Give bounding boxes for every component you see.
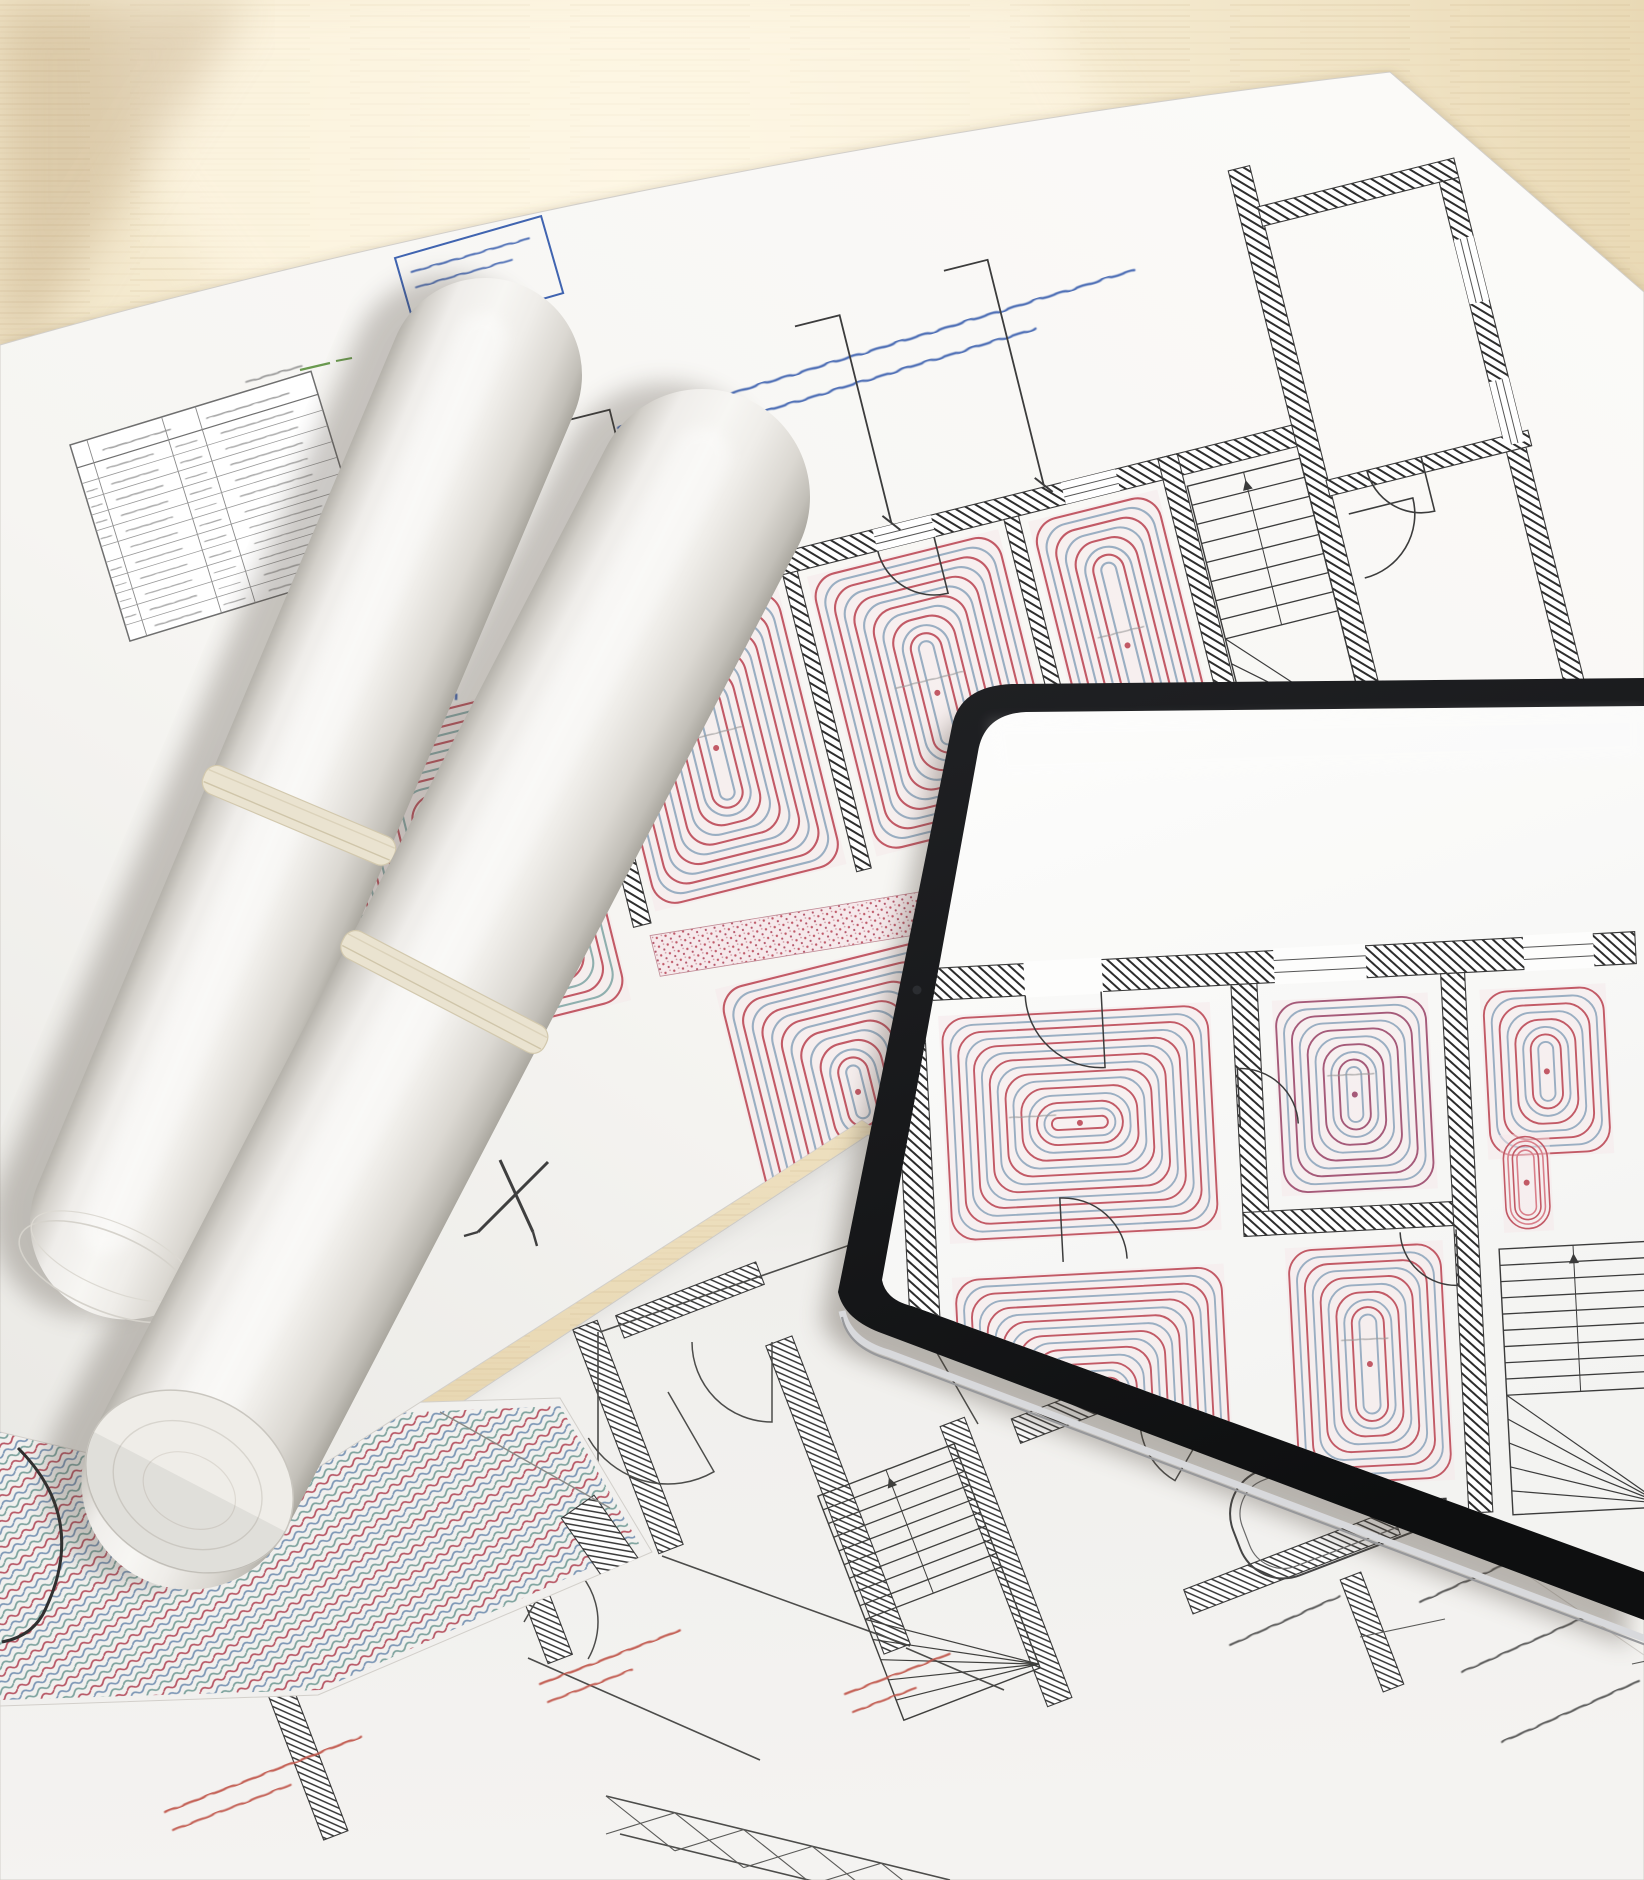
wall-gap [1273,944,1367,985]
photo-blueprints-on-desk [0,0,1644,1880]
heating-coil-room [1499,1132,1554,1232]
wall-gap [1023,958,1103,998]
heating-coil-room [938,1002,1222,1244]
heating-coil-room [1272,993,1438,1197]
tablet-camera [913,986,922,995]
wall-gap [1523,932,1595,972]
